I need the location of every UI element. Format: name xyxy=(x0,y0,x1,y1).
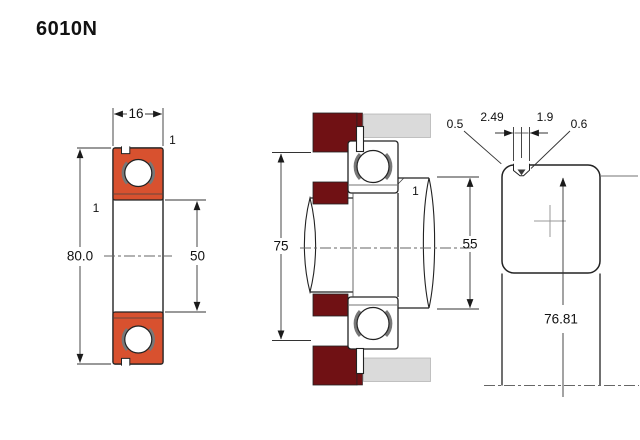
bearing-drawing: 16 80.0 50 1 1 xyxy=(0,0,640,440)
front-section-view: 16 80.0 50 1 1 xyxy=(67,106,206,366)
bearing-drawing-page: 6010N xyxy=(0,0,640,440)
shaft-break xyxy=(304,198,315,292)
housing-cover xyxy=(364,114,431,138)
groove-detail-view: 76.81 2.49 1.9 0.5 0.6 xyxy=(447,110,639,397)
snap-ring xyxy=(357,127,364,152)
ball-bottom xyxy=(125,326,152,353)
shaft-break xyxy=(423,178,434,308)
groove-diameter-label: 76.81 xyxy=(544,312,578,327)
chamfer-label: 1 xyxy=(169,133,176,147)
snap-ring-groove-bottom xyxy=(122,358,130,365)
housing-section xyxy=(357,113,363,127)
bore-diameter-label: 50 xyxy=(190,249,205,264)
ball-top xyxy=(357,151,389,183)
groove-width-bottom-label: 1.9 xyxy=(537,110,554,124)
ball-top xyxy=(125,160,152,187)
ball-bottom xyxy=(357,308,389,340)
leader-line xyxy=(464,131,501,164)
housing-shoulder xyxy=(313,294,348,316)
mounted-section-view: 75 55 1 xyxy=(272,113,479,385)
shaft-chamfer xyxy=(398,178,404,184)
housing-cover xyxy=(364,358,431,382)
land-width-label: 0.5 xyxy=(447,117,464,131)
housing-shoulder-dim-label: 75 xyxy=(273,239,288,254)
outer-ring-detail xyxy=(502,165,600,273)
leader-line xyxy=(531,131,570,169)
housing-section xyxy=(313,346,357,385)
groove-width-top-label: 2.49 xyxy=(480,110,504,124)
groove-edge-label: 0.6 xyxy=(571,117,588,131)
chamfer-label: 1 xyxy=(93,201,100,215)
shaft-shoulder-dim-label: 55 xyxy=(462,237,477,252)
width-dim-label: 16 xyxy=(128,106,143,121)
outer-diameter-label: 80.0 xyxy=(67,249,93,264)
housing-shoulder xyxy=(313,182,348,204)
chamfer-label: 1 xyxy=(412,184,419,198)
snap-ring-groove-top xyxy=(122,146,130,153)
snap-ring xyxy=(357,349,364,374)
